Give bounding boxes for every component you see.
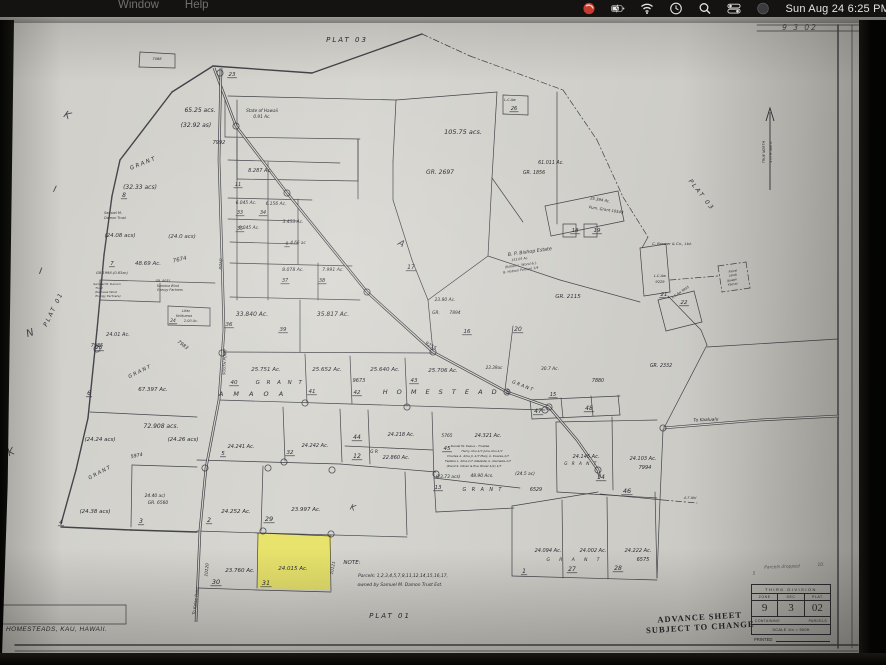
monument-circle [265, 465, 271, 471]
wifi-icon[interactable] [640, 2, 654, 15]
parcel-line [230, 263, 352, 266]
map-label: 38 [319, 278, 325, 284]
menubar-status-icons: Sun Aug 24 6:25 PM [582, 2, 886, 15]
parcel-line [607, 497, 608, 579]
parcel-line [488, 178, 492, 256]
map-label: 2.00 Ac. [184, 319, 198, 323]
map-label: 23.760 Ac. [225, 568, 255, 574]
map-label: 67.397 Ac. [138, 387, 168, 393]
parcel-line [612, 417, 613, 490]
parcel-line [112, 160, 120, 196]
map-label: 7 [110, 261, 114, 267]
titleblock-sec-label: SEC [777, 594, 803, 600]
parcel-line [168, 306, 210, 308]
map-label: 24.094 Ac. [535, 548, 562, 554]
map-label: 24.145 Ac. [573, 454, 600, 460]
parcel-line [432, 412, 434, 478]
map-label: 25.751 Ac. [251, 367, 281, 373]
map-label: 23 [229, 72, 236, 78]
map-label: N [25, 327, 36, 340]
map-label: 25.640 Ac. [370, 367, 400, 373]
map-label: 72.908 acs. [144, 423, 179, 430]
parcel-line [257, 590, 331, 592]
map-label: Energy Partners [157, 288, 183, 292]
map-label: 48.69 Ac. [135, 261, 161, 267]
map-label: (24.5 ac) [515, 471, 535, 477]
parcel-line [283, 407, 285, 461]
parcel-line [618, 395, 620, 415]
map-label: 25.706 Ac. [428, 368, 458, 374]
map-label: (Rand S. Oliver & Eva Oliver-1/2) 1/7 [447, 464, 502, 468]
map-label: 28 [614, 565, 622, 572]
map-label: 29 [265, 515, 273, 523]
parcel-line [140, 52, 175, 54]
menu-item-window[interactable]: Window [118, 0, 159, 11]
map-label: 4.66 ac [290, 240, 306, 245]
map-label: 24.242 Ac. [302, 443, 329, 449]
map-label: 47 [534, 408, 542, 415]
menubar: Window Help [0, 0, 886, 17]
parcel-line [396, 92, 497, 100]
parcel-line [660, 430, 663, 500]
parcel-line [90, 412, 197, 417]
map-label: 61.011 Ac. [538, 160, 564, 166]
parcel-line [666, 244, 670, 292]
map-label: Fedelia L. Ahia-1/7 Adelaide A. Alameda-… [445, 459, 511, 463]
map-label: G R A N T [88, 464, 113, 481]
map-label: Parcels: 1,2,3,4,5,7,8,11,12,14,15,16,17… [358, 573, 448, 579]
parcel-line [132, 465, 197, 467]
map-label: 9229 [655, 280, 665, 284]
map-label: GR. [432, 310, 440, 316]
map-label: 24.103 Ac. [630, 456, 657, 462]
parcel-line [545, 206, 551, 236]
battery-icon[interactable] [611, 2, 625, 15]
map-label: 11 [235, 182, 241, 188]
map-label: 24.40 ac) [145, 493, 166, 499]
map-label: (24.08 acs) [104, 233, 135, 239]
map-label: 43 [411, 378, 418, 384]
map-label: owned by Samuel M. Damon Trust Est. [358, 582, 443, 588]
map-label: PLAT 01 [369, 612, 411, 620]
titleblock-headers: ZONE SEC PLAT [752, 594, 830, 601]
containing-label: CONTAINING [755, 619, 780, 623]
printed-underline [776, 638, 830, 642]
map-label: Daniel W. Kaaua - Trustee [451, 444, 490, 448]
map-label: 24.241 Ac. [228, 444, 255, 450]
map-label: 7568 [152, 57, 162, 61]
parcel-line [368, 410, 370, 464]
titleblock-plat-value: 02 [804, 601, 830, 616]
map-label: 3 [139, 518, 143, 525]
parcel-line [197, 531, 261, 533]
parcel-line [512, 492, 598, 506]
parcel-line [405, 472, 407, 535]
map-label: 8 [122, 192, 126, 199]
app-logo-icon[interactable] [582, 2, 596, 15]
parcels-label: PARCELS [809, 619, 827, 623]
map-label: 8.078 Ac. [282, 267, 304, 273]
titleblock-sec-value: 3 [777, 601, 803, 616]
map-label: Kaona) [728, 281, 738, 286]
map-label: 33.840 Ac. [236, 311, 268, 318]
map-label: Pum. Grant 10549 [589, 204, 625, 214]
map-label: B. P. Bishop Estate [507, 246, 552, 258]
map-label: G R A N T [546, 557, 603, 563]
map-label: 18 [572, 228, 579, 234]
parcel-line [503, 95, 528, 96]
map-label: 7.991 Ac. [322, 267, 344, 273]
parcel-line [492, 92, 497, 178]
map-label: I [52, 185, 57, 195]
road-inner [214, 68, 600, 478]
titleblock-table: THIRD DIVISION ZONE SEC PLAT 9 3 02 CONT… [751, 584, 831, 635]
menu-item-help[interactable]: Help [185, 0, 209, 11]
parcel-line [746, 262, 750, 288]
map-label: I [38, 267, 43, 277]
map-label: 25.652 Ac. [312, 367, 342, 373]
parcel-line [561, 398, 563, 418]
map-label: 23.80 Ac. [435, 297, 456, 303]
map-label: Samuel M. [104, 211, 122, 215]
parcel-line [512, 576, 657, 580]
parcel-line [168, 325, 210, 326]
map-label: G R A N T [127, 364, 152, 380]
monument-circle [329, 467, 335, 473]
parcel-line [237, 179, 358, 181]
parcel-line [666, 322, 702, 331]
parcel-line [528, 396, 620, 400]
parcel-line [222, 352, 433, 353]
printed-label: PRINTED [754, 637, 772, 642]
parcel-line [197, 460, 340, 464]
map-label: 48.90 Acs. [470, 473, 493, 479]
map-label: 35 [237, 226, 243, 232]
map-label: 32 [287, 450, 294, 456]
map-label: To Kalae Point [191, 586, 200, 615]
parcel-line [172, 66, 213, 92]
parcel-line [492, 178, 523, 222]
parcel-line [663, 345, 707, 430]
map-label: PLAT 01 [42, 291, 65, 328]
menubar-clock[interactable]: Sun Aug 24 6:25 PM [785, 3, 886, 15]
map-label: 15 [550, 392, 556, 398]
map-label: GR. 2697 [426, 169, 454, 176]
parcel-line [340, 464, 436, 472]
map-label: 7992 [213, 140, 226, 146]
map-label: 6575 [637, 557, 650, 563]
map-label: K [62, 109, 74, 122]
map-label: 10120 [203, 563, 209, 577]
parcel-line [340, 409, 342, 462]
map-label: 22.860 Ac. [383, 455, 410, 461]
map-label: 9 3 02 [782, 23, 818, 32]
map-label: 13 [435, 485, 442, 491]
map-label: K [349, 503, 357, 513]
parcel-line [623, 197, 648, 237]
map-label: 44 [353, 434, 361, 441]
map-label: (23.73 acs) [436, 474, 461, 480]
parcel-line [139, 67, 175, 68]
parcel-line [131, 465, 132, 527]
parcel-line [61, 470, 76, 524]
control-center-icon[interactable] [727, 2, 741, 15]
parcel-line [305, 354, 307, 403]
parcel-line [139, 52, 140, 67]
map-label: 24.015 Ac. [278, 566, 308, 572]
map-label: 20 [514, 326, 522, 333]
map-label: 6.156 Ac. [266, 201, 287, 207]
map-label: 25 [96, 345, 103, 351]
map-label: 6 [87, 390, 91, 397]
map-label: (32.33 acs) [123, 184, 157, 191]
parcel-line [393, 200, 412, 260]
titleblock-values: 9 3 02 [752, 601, 830, 617]
map-label: State of Hawaii [246, 108, 279, 113]
titleblock-zone-label: ZONE [752, 594, 777, 600]
map-label: (24.38 acs) [79, 509, 110, 515]
map-label: GR. 2332 [650, 363, 672, 369]
map-label: 5 [753, 571, 756, 577]
map-label: 39 [280, 327, 287, 333]
photo-edge-bottom [0, 653, 886, 665]
parcel-line [219, 400, 350, 404]
parcel-line [434, 478, 436, 512]
map-label: L.C.Aw [504, 98, 516, 102]
map-label: (24.26 acs) [167, 437, 198, 443]
parcel-line [618, 191, 624, 221]
parcel-line [670, 276, 718, 280]
parcel-line [640, 248, 644, 296]
printed-line: PRINTED [754, 637, 830, 642]
parcel-line [655, 492, 657, 578]
map-label: 3.453 Ac. [283, 219, 304, 225]
parcel-line [563, 90, 597, 140]
map-label: H O M E S T E A D S [383, 388, 514, 396]
map-label: G R A N T [463, 487, 504, 493]
map-label: Energy Partners) [95, 294, 120, 298]
parcel-line [120, 92, 172, 160]
parcel-line [350, 404, 545, 410]
map-label: 30 [212, 578, 220, 586]
parcel-line [199, 588, 257, 590]
map-label: GR. 2115 [555, 294, 581, 300]
map-label: 23.997 Ac. [291, 507, 321, 513]
parcel-line [131, 530, 197, 532]
map-label: 31 [262, 579, 270, 587]
parcel-boundaries [3, 25, 886, 651]
parcel-line [393, 100, 396, 161]
map-label: (32.92 as) [181, 122, 212, 129]
map-label: 5974 [130, 452, 143, 460]
map-label: 9 [286, 241, 289, 247]
map-label: Harry Ahu-1/7 Julia Ahu-1/7 [461, 449, 502, 453]
parcel-line [701, 330, 707, 345]
map-label: G R A N T [129, 156, 156, 172]
parcel-line [61, 527, 131, 530]
map-label: 24.222 Ac. [625, 548, 652, 554]
parcel-line [707, 339, 838, 347]
parcel-line [551, 221, 624, 236]
map-label: 24.252 Ac. [221, 509, 251, 515]
map-label: 7994 [639, 465, 652, 471]
map-label: 65.25 acs. [184, 107, 215, 114]
map-label: GR. 6560 [148, 500, 169, 506]
map-label: 34 [260, 210, 266, 216]
map-label: 23.39ac [486, 365, 504, 370]
map-label: (24.0 acs) [168, 234, 196, 240]
map-label: 37 [282, 278, 289, 284]
map-label: 4-7 Ahi [684, 496, 697, 500]
parcel-line [532, 415, 620, 419]
map-label: PLAT 03 [687, 178, 716, 212]
map-label: 10121 [329, 560, 336, 574]
map-label: 40 [231, 380, 238, 386]
map-label: ROAD [218, 258, 224, 270]
parcel-line [104, 196, 112, 255]
parcel-line [718, 266, 722, 292]
map-label: 22 [681, 300, 688, 306]
map-label: 33 [237, 210, 243, 216]
map-label: A [395, 238, 406, 250]
parcel-line [228, 96, 396, 100]
titleblock-scale: SCALE 1in = 500ft [752, 625, 830, 634]
map-label: 30.7 Ac. [541, 366, 559, 372]
map-label: GR. 8031 [156, 279, 171, 283]
map-label: 24.01 Ac. [106, 332, 130, 338]
menubar-menus: Window Help [0, 3, 209, 15]
parcel-line [642, 237, 648, 248]
parcel-line [230, 297, 360, 300]
map-label: 1 in = 500 ft [769, 141, 773, 163]
map-label: 25.394 Ac. [590, 195, 611, 203]
map-label: L.C.Aw 9955 [671, 285, 690, 299]
screen-photo: Window Help [0, 0, 886, 665]
map-label: (24.24 acs) [84, 437, 115, 443]
titleblock-containing: CONTAINING PARCELS [752, 617, 830, 625]
search-icon[interactable] [698, 2, 712, 15]
map-label: 24.321 Ac. [475, 433, 502, 439]
map-label: 8.287 Ac. [248, 168, 272, 174]
map-label: 9673 [353, 378, 366, 384]
map-label: C. Brewer & Co., Ltd. [652, 241, 692, 246]
parcel-line [694, 291, 702, 322]
clock-icon[interactable] [669, 2, 683, 15]
road-outer [214, 68, 600, 478]
map-label: 5 [221, 451, 225, 457]
map-label: 16 [464, 329, 471, 335]
map-label: A M A O A [218, 390, 287, 398]
parcel-line [556, 420, 657, 422]
map-label: 24.002 Ac. [580, 548, 607, 554]
monument-circle [281, 459, 287, 465]
map-label: 7983 [176, 339, 189, 351]
map-label: Parcels dropped [764, 563, 800, 570]
parcel-line [261, 466, 263, 531]
map-label: 4 [59, 519, 63, 526]
parcel-line [76, 418, 88, 470]
parcel-line [405, 358, 407, 406]
map-label: G R A N T [256, 380, 305, 386]
parcel-line [663, 500, 697, 503]
parcel-line [470, 56, 563, 90]
map-label: 24 [170, 318, 176, 324]
parcel-line [556, 422, 557, 492]
map-label: 7880 [592, 378, 604, 384]
dark-circle-icon[interactable] [756, 2, 770, 15]
titleblock-division: THIRD DIVISION [752, 585, 830, 594]
parcel-line [657, 500, 660, 578]
photo-edge-right [859, 20, 886, 665]
map-label: 17 [407, 264, 415, 271]
map-sheet-title: HOMESTEADS, KAU, HAWAII. [6, 626, 107, 633]
map-label: G R [370, 449, 378, 455]
map-label: 36 [226, 322, 233, 328]
map-label: 21 [661, 292, 668, 298]
map-label: 7674 [172, 256, 187, 265]
map-label: 6529 [530, 487, 542, 493]
map-label: 26 [511, 106, 517, 112]
map-label: 35.817 Ac. [317, 311, 349, 318]
map-label: 10. [818, 562, 825, 568]
map-label: L.C.Aw [654, 274, 666, 278]
map-label: Lilian [182, 309, 190, 313]
parcel-line [658, 300, 666, 331]
parcel-line [436, 508, 514, 512]
parcel-line [597, 140, 623, 197]
map-label: 12 [353, 453, 361, 460]
plat-map: PLAT 039 3 027568State of Hawaii0.91 Ac.… [0, 0, 886, 665]
map-label: 48 [585, 405, 593, 412]
map-label: 5765 [441, 433, 452, 439]
map-label: 46 [623, 487, 631, 495]
parcel-line [228, 160, 340, 163]
map-label: TRUE NORTH [762, 140, 766, 163]
map-label: Damon Trust [104, 216, 126, 220]
map-label: 24.218 Ac. [388, 432, 415, 438]
map-label: 19 [594, 228, 601, 234]
map-label: 27 [568, 566, 576, 573]
map-label: 105.75 acs. [444, 128, 482, 136]
map-label: Charles A. Ahia Jr.-1/7 Mary A. Koares-1… [447, 454, 509, 458]
parcel-line [345, 446, 433, 450]
titleblock-plat-label: PLAT [804, 594, 830, 600]
map-label: 41 [309, 389, 316, 395]
parcel-line [718, 262, 746, 266]
map-label: 0.91 Ac. [253, 114, 270, 119]
map-label: G R A N T [564, 461, 598, 466]
map-label: 6.045 Ac. [236, 200, 257, 206]
map-label: NOTE: [343, 560, 360, 566]
map-label: 2 [207, 517, 211, 524]
parcel-line [428, 256, 488, 300]
map-label: PLAT 03 [326, 36, 368, 44]
parcel-line [562, 500, 563, 578]
parcel-line [422, 34, 470, 56]
map-label: GR. 1856 [523, 170, 545, 176]
parcel-line [228, 198, 312, 200]
map-label: 42 [354, 390, 361, 396]
map-label: G R A N T [511, 379, 535, 393]
map-label: SOUTH POINT [221, 348, 228, 375]
map-label: GR 1998-(0.63ac) [96, 271, 128, 275]
map-label: 14 [597, 474, 605, 481]
map-label: 7894 [449, 310, 460, 316]
parcel-line [100, 300, 160, 302]
parcel-line [722, 288, 750, 292]
parcel-line [503, 114, 528, 115]
map-label: 1 [522, 568, 526, 575]
